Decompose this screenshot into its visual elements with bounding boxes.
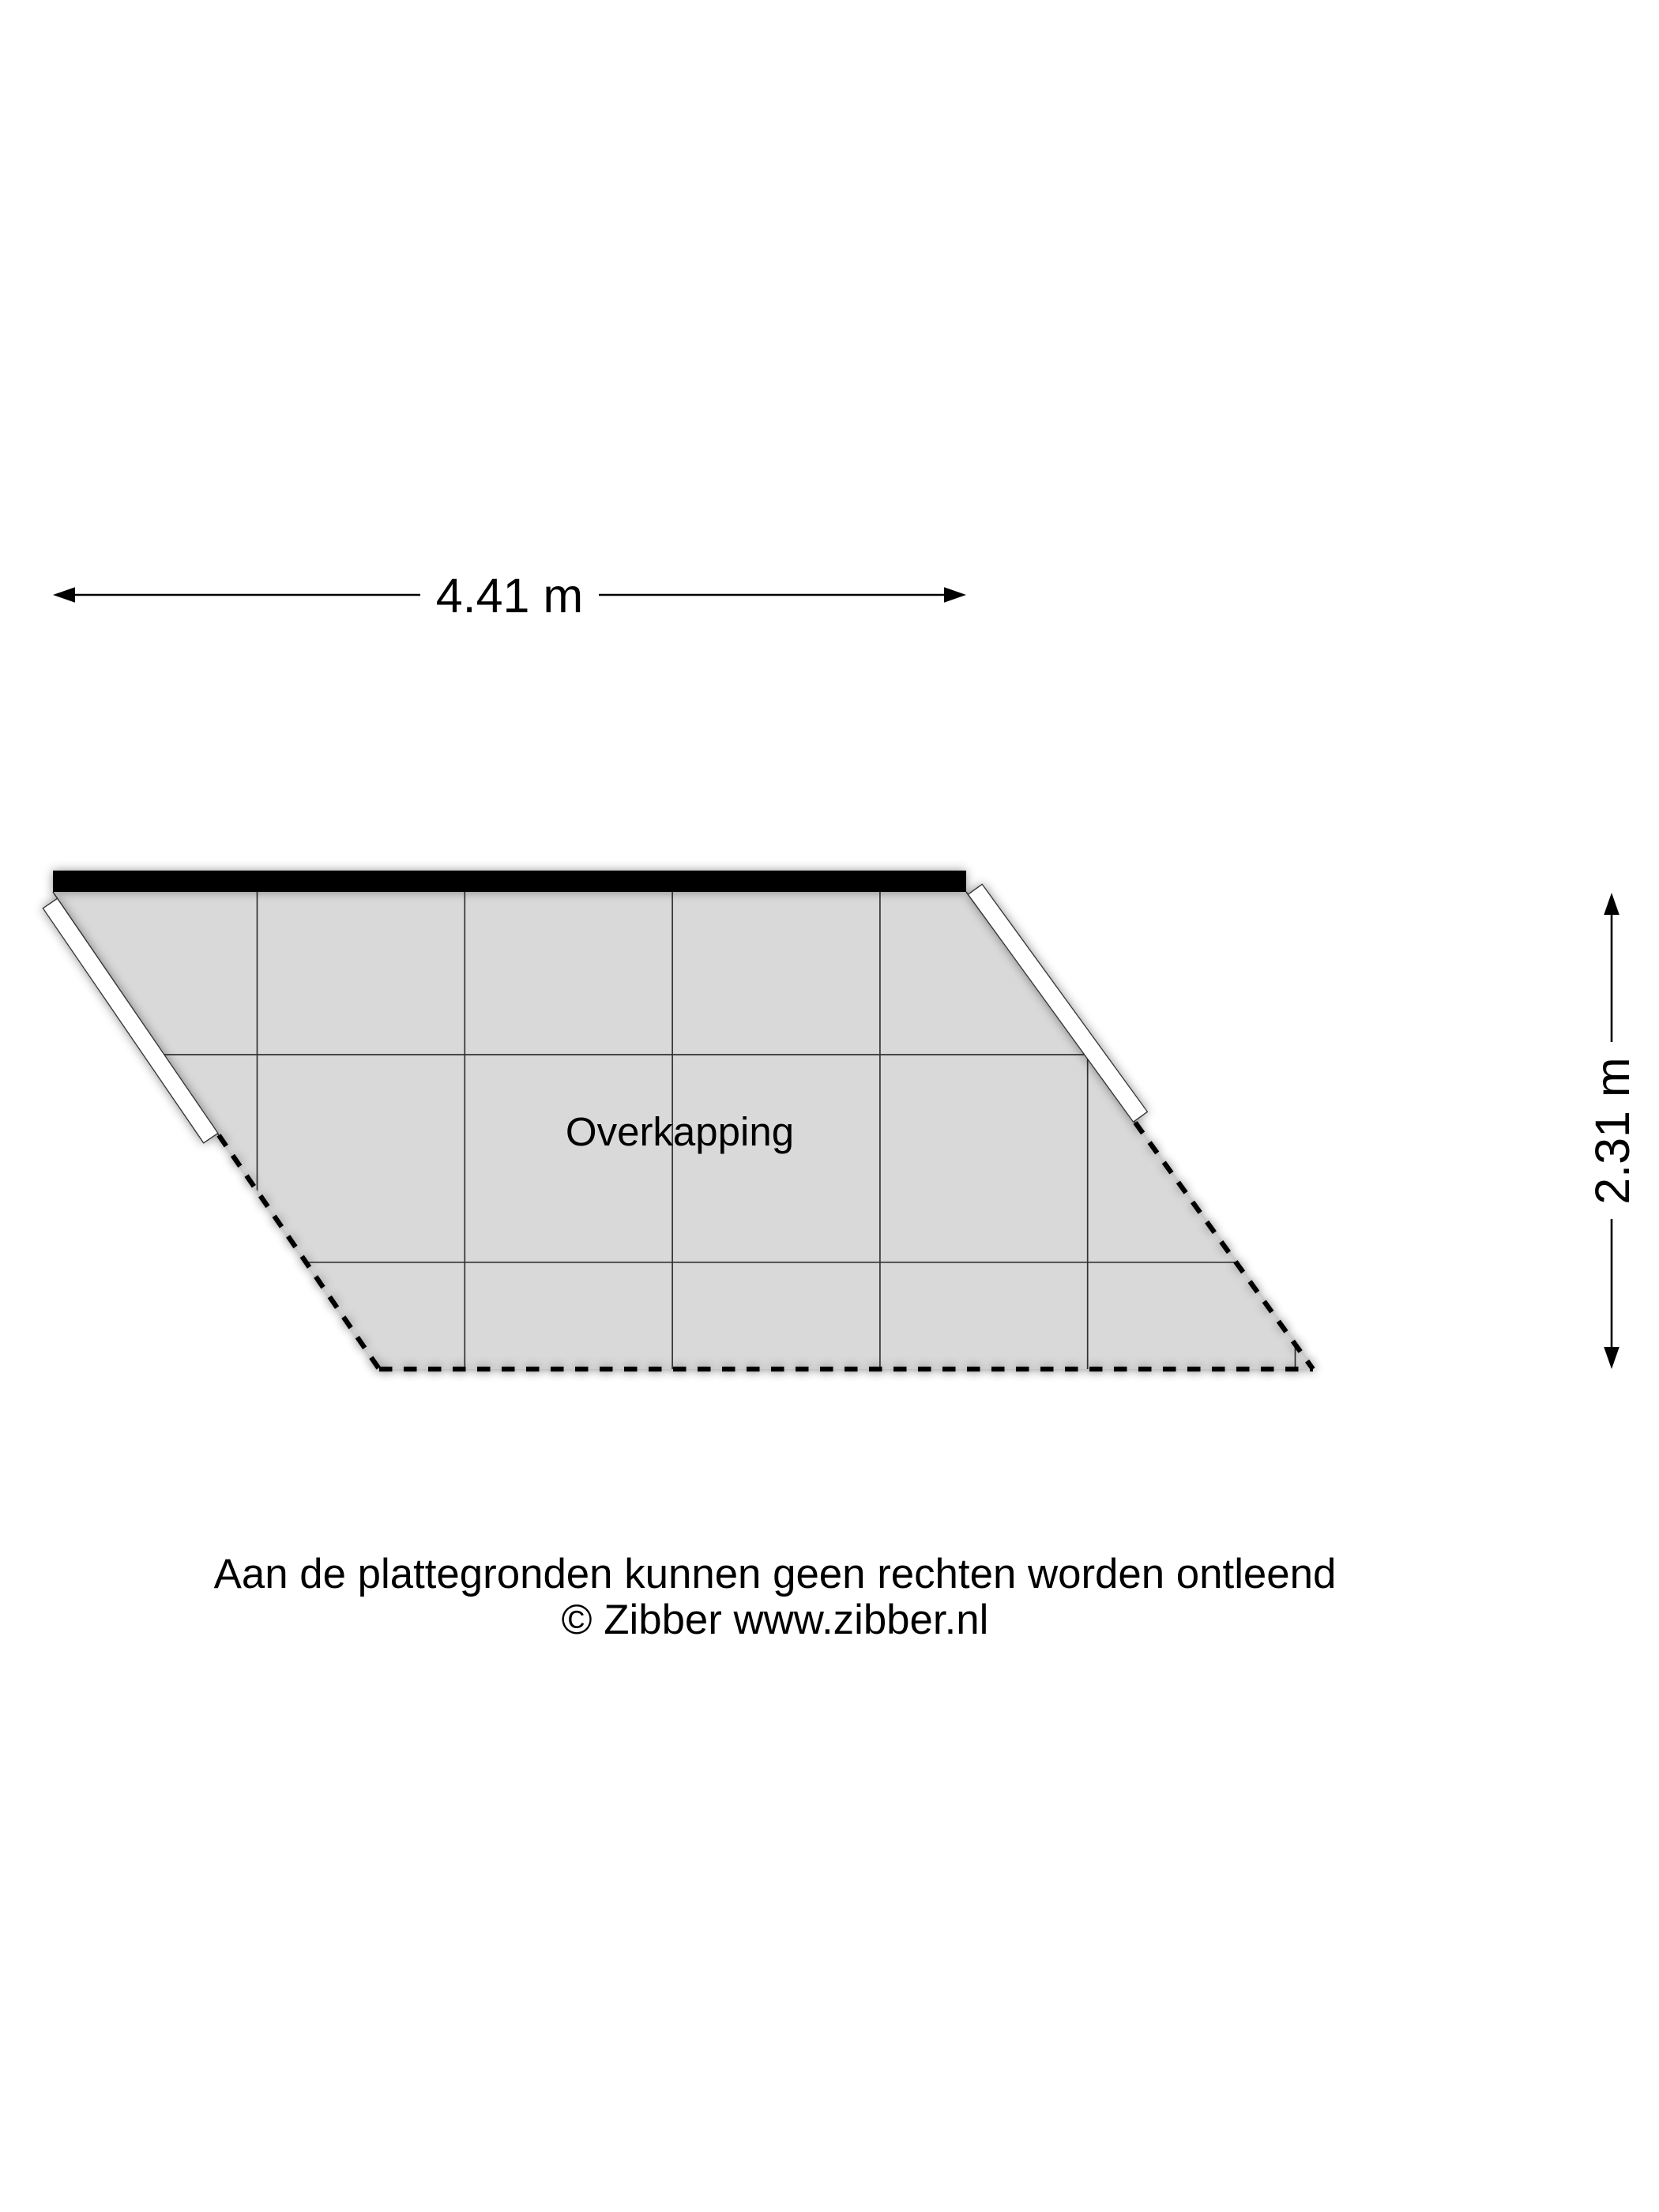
- svg-text:4.41 m: 4.41 m: [436, 569, 584, 623]
- svg-text:Overkapping: Overkapping: [566, 1109, 794, 1154]
- svg-text:© Zibber www.zibber.nl: © Zibber www.zibber.nl: [562, 1597, 989, 1643]
- svg-text:Aan de plattegronden kunnen ge: Aan de plattegronden kunnen geen rechten…: [214, 1551, 1337, 1597]
- svg-text:2.31 m: 2.31 m: [1586, 1057, 1639, 1205]
